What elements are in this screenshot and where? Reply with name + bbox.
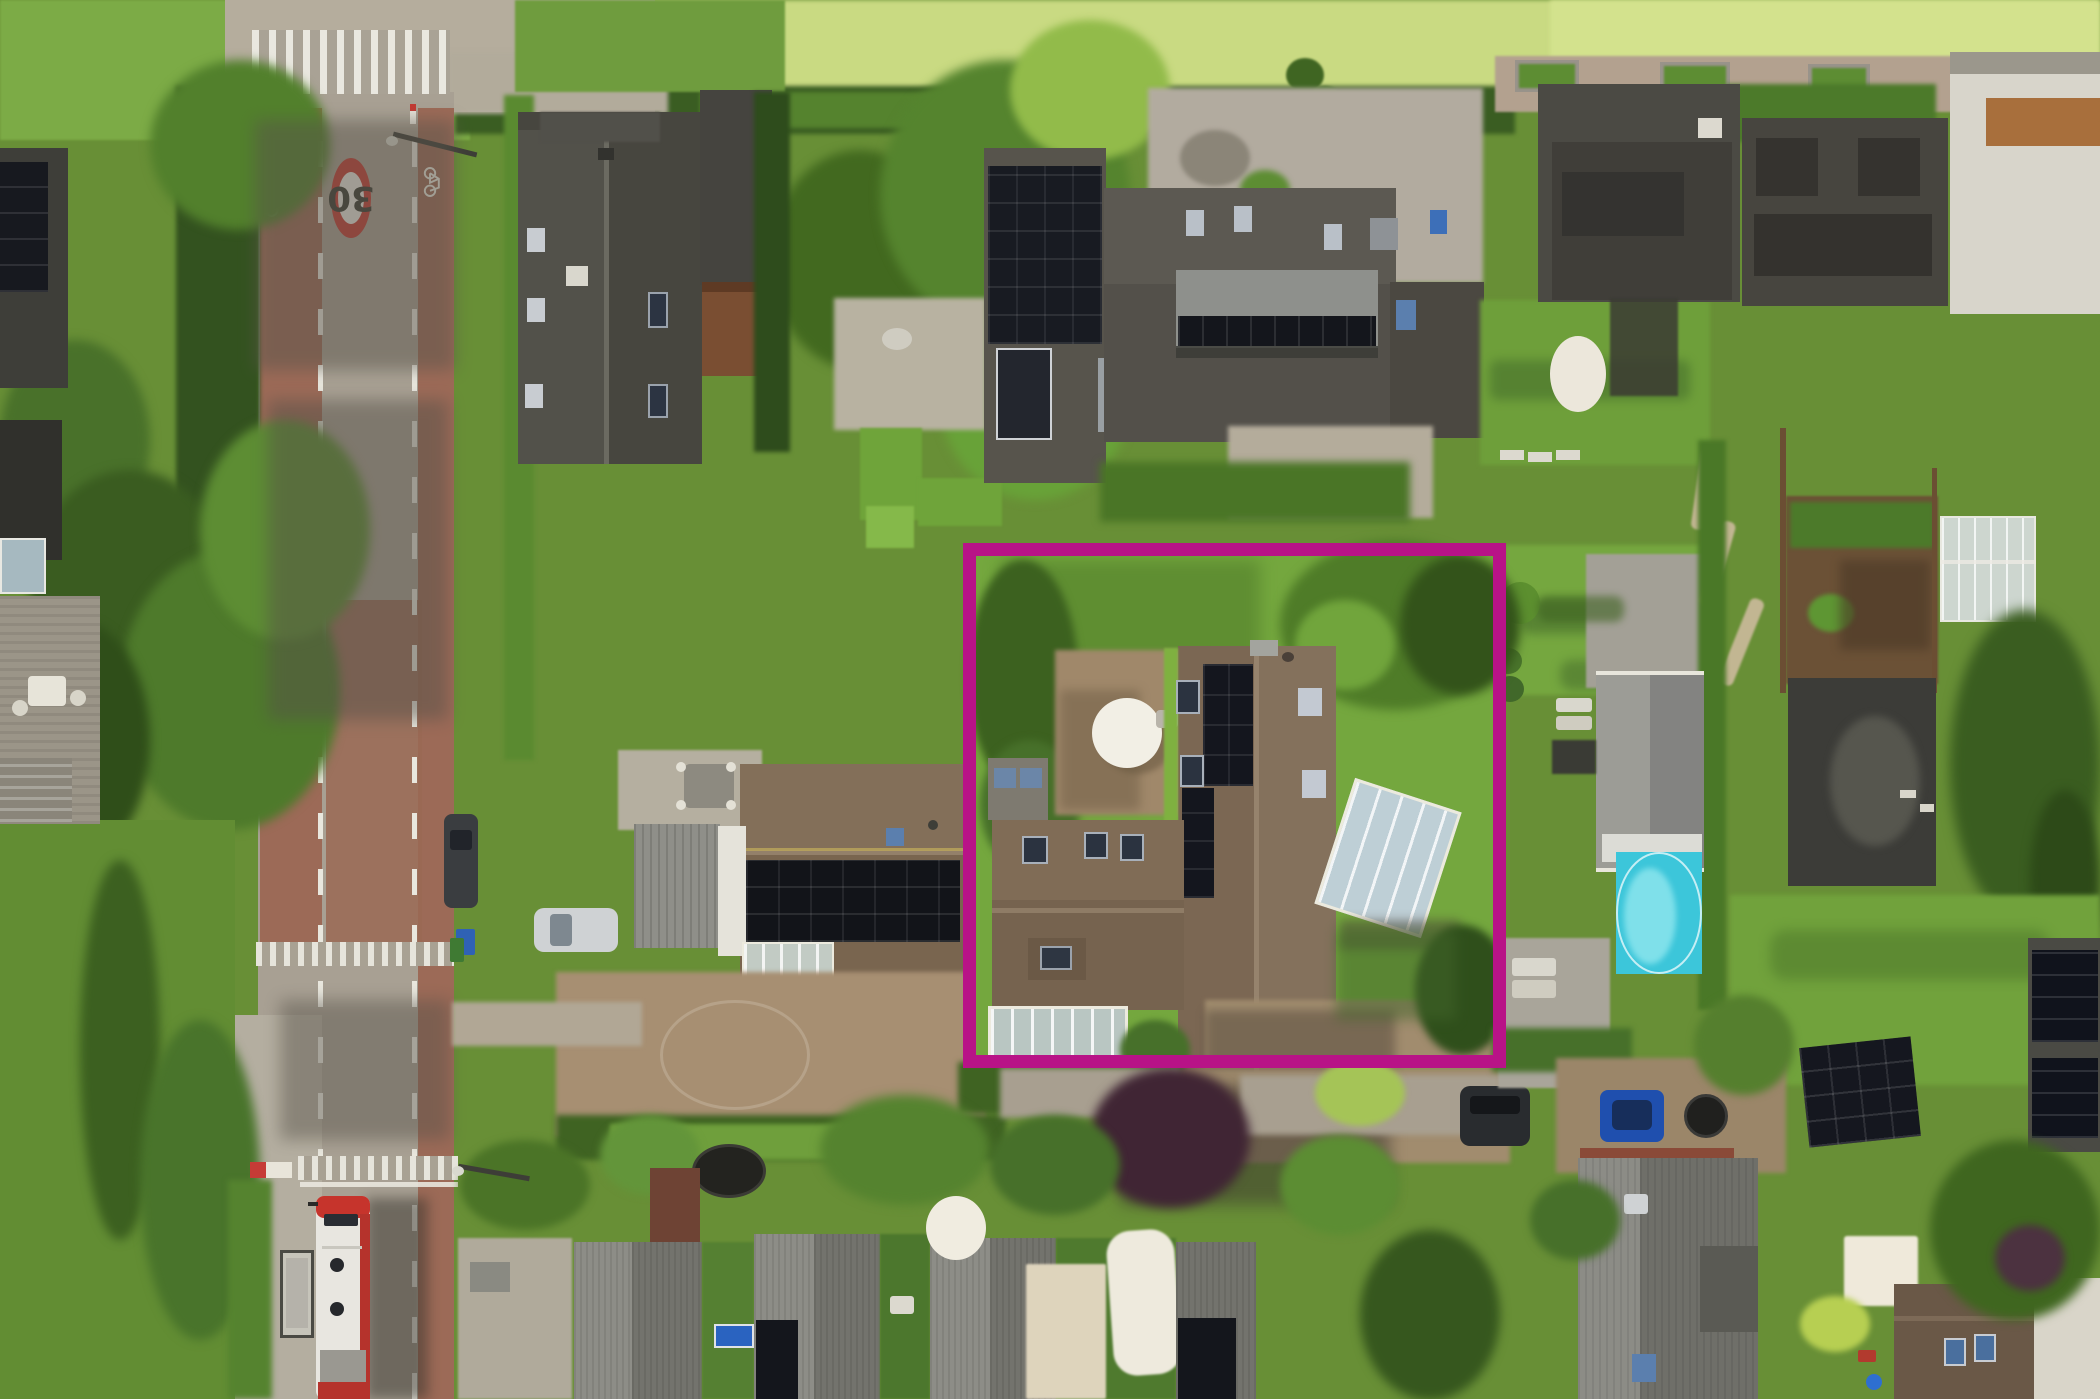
silver-car-glass: [550, 914, 572, 946]
pool-edge: [1616, 852, 1702, 974]
g-ac-unit: [1624, 1194, 1648, 1214]
b-left-wing-solar-grid: [988, 166, 1102, 344]
tree-shadow-on-road: [268, 400, 448, 720]
crossing-stripes-low: [298, 1156, 458, 1180]
lounger: [1556, 698, 1592, 712]
parasol-white: [1550, 336, 1606, 412]
parked-dark-car-glass: [1470, 1096, 1520, 1114]
g-red-item: [1858, 1350, 1876, 1362]
rt-house2-band: [1754, 214, 1932, 276]
row-garden-gap: [880, 1234, 930, 1399]
purple-shrub: [1995, 1225, 2065, 1291]
d-house-roof-north: [740, 764, 966, 852]
rt-house2-dormer: [1756, 138, 1818, 196]
bus-windshield: [324, 1214, 358, 1226]
g-lime-bush: [1800, 1296, 1870, 1352]
silver-car: [534, 908, 618, 952]
garden-patio: [834, 298, 986, 430]
tlh-garden: [515, 0, 785, 92]
greenhouse: [1940, 516, 2036, 622]
bus-mirror: [308, 1202, 318, 1206]
tlh-roof-west-slope: [518, 130, 606, 464]
garden-fence: [1780, 428, 1786, 693]
row-garden-gap: [702, 1242, 754, 1399]
lounger: [1512, 958, 1556, 976]
d-solar-array-rows: [746, 860, 960, 942]
d-chair: [726, 800, 736, 810]
b-solar-thermal: [996, 348, 1052, 440]
tree-canopy: [1360, 1230, 1500, 1399]
b-skylight: [1186, 210, 1204, 236]
stop-line: [300, 1182, 458, 1187]
row-solar-panel: [1178, 1318, 1236, 1399]
garden-steps: [0, 758, 72, 822]
b-blue-bin: [1430, 210, 1447, 234]
br-skylight: [1944, 1338, 1966, 1366]
crossing-stripes-mid: [256, 942, 454, 966]
shrub: [1530, 1180, 1620, 1260]
property-highlight-box: [963, 543, 1506, 1068]
tree-shadow-on-road: [255, 120, 455, 370]
rt-house-dormer: [1562, 172, 1684, 236]
lime-bush: [1315, 1060, 1405, 1126]
street-lamp-head: [452, 1166, 464, 1176]
garden-boulder: [882, 328, 912, 350]
d-chair: [676, 762, 686, 772]
lounger: [1512, 980, 1556, 998]
side-street: [452, 1002, 642, 1046]
solar-water-panel: [714, 1324, 754, 1348]
garden-fence: [1932, 468, 1937, 693]
b-skylight: [1234, 206, 1252, 232]
garden-table: [890, 1296, 914, 1314]
white-shade-sail: [1105, 1228, 1183, 1377]
b-dormer-solar-band: [1178, 316, 1376, 346]
row-solar-panel: [756, 1320, 798, 1399]
tlh-white-box: [566, 266, 588, 286]
shrub: [1280, 1135, 1400, 1235]
veg-garden-shadow: [1840, 560, 1930, 650]
pool-house-gutter: [1596, 671, 1704, 675]
deck-chair: [12, 700, 28, 716]
bus-stop-sign-red: [250, 1162, 266, 1178]
bus-rear-gray: [320, 1350, 366, 1382]
aerial-photo: 30: [0, 0, 2100, 1399]
sign-post-top: [410, 104, 416, 111]
tlh-roof-window: [648, 292, 668, 328]
deck-chair: [70, 690, 86, 706]
bus-roof-vent: [330, 1258, 344, 1272]
lounger: [1556, 450, 1580, 460]
bus-rear-red: [318, 1382, 368, 1399]
tlh-skylight: [525, 384, 543, 408]
small-shed: [470, 1262, 510, 1292]
row-roof: [814, 1234, 880, 1399]
red-roof-block: [650, 1168, 700, 1242]
veg-garden-rows: [1790, 502, 1934, 548]
d-white-flat-roof: [718, 826, 746, 956]
white-house-roofline: [1950, 52, 2100, 74]
re-solar-array: [2032, 950, 2098, 1042]
pergola: [1610, 298, 1678, 396]
dark-building-sheen: [1830, 716, 1920, 846]
shrub: [460, 1140, 590, 1230]
tlh-hip-top: [540, 112, 660, 142]
white-house-deck: [1986, 98, 2100, 146]
bus-panel-line: [322, 1246, 362, 1249]
b-patio-hedge: [1100, 462, 1410, 522]
shrub: [990, 1115, 1120, 1215]
hedge: [228, 1180, 272, 1399]
shrub: [820, 1095, 990, 1205]
d-carport: [634, 824, 720, 948]
corner-house-solar: [0, 162, 48, 292]
rt-house2-dormer: [1858, 138, 1920, 196]
deck-table: [28, 676, 66, 706]
bus-shadow: [366, 1198, 428, 1399]
br-skylight: [1974, 1334, 1996, 1362]
lounger: [1556, 716, 1592, 730]
d-chair: [726, 762, 736, 772]
pyramid-skylight: [0, 538, 46, 594]
green-crates: [450, 938, 464, 962]
dark-car: [444, 814, 478, 908]
lounger: [1500, 450, 1524, 460]
b-roof-box: [1370, 218, 1398, 250]
d-chair: [676, 800, 686, 810]
topiary-shadow: [1538, 596, 1624, 622]
g-blue-skylight: [1632, 1354, 1656, 1382]
dark-car-glass: [450, 830, 472, 850]
beige-canopy: [1026, 1264, 1106, 1399]
garden-seating: [1552, 740, 1596, 774]
row-roof: [574, 1242, 632, 1399]
tlh-skylight: [527, 298, 545, 322]
lawn-mid-shadow: [1770, 930, 2050, 980]
blue-car-glass: [1612, 1100, 1652, 1130]
trampoline: [692, 1144, 766, 1198]
tree-canopy-lime: [1010, 20, 1170, 160]
bus-shelter-glass: [286, 1258, 308, 1328]
patio-furniture: [1920, 804, 1934, 812]
patio-furniture: [1900, 790, 1916, 798]
d-ridge-lichen: [740, 848, 966, 851]
row-roof: [632, 1242, 702, 1399]
formal-hedge: [866, 506, 914, 548]
b-right-skylight: [1396, 300, 1416, 330]
pergola-vines: [1694, 995, 1794, 1095]
re-solar-array: [2032, 1058, 2098, 1138]
tlh-roof-window: [648, 384, 668, 418]
row-roof: [930, 1238, 990, 1399]
b-skylight: [1324, 224, 1342, 250]
white-umbrella: [926, 1196, 986, 1260]
tlh-skylight: [527, 228, 545, 252]
g-blue-ball: [1866, 1374, 1882, 1390]
b-dormer-shadow: [1176, 346, 1378, 358]
formal-hedge: [918, 478, 1002, 526]
g-house-wing: [1700, 1246, 1758, 1332]
rt-white-vent: [1698, 118, 1722, 138]
d-blue-skylight: [886, 828, 904, 846]
white-house: [1950, 52, 2100, 314]
bus-roof-vent: [330, 1302, 344, 1316]
d-roof-vent: [928, 820, 938, 830]
greenhouse-ridge: [1940, 560, 2036, 564]
parked-dark-car: [1460, 1086, 1530, 1146]
hot-tub: [1684, 1094, 1728, 1138]
tlh-ridge: [604, 126, 609, 464]
solar-canopy-grid: [1799, 1036, 1921, 1147]
tree-shadow-on-road: [280, 1000, 450, 1140]
purple-leaf-tree: [1090, 1068, 1250, 1208]
b-rock-garden: [1180, 130, 1250, 186]
lounger: [1528, 452, 1552, 462]
d-driveway-circle: [660, 1000, 810, 1110]
tlh-chimney: [598, 148, 614, 160]
hedge-tall: [754, 92, 790, 452]
